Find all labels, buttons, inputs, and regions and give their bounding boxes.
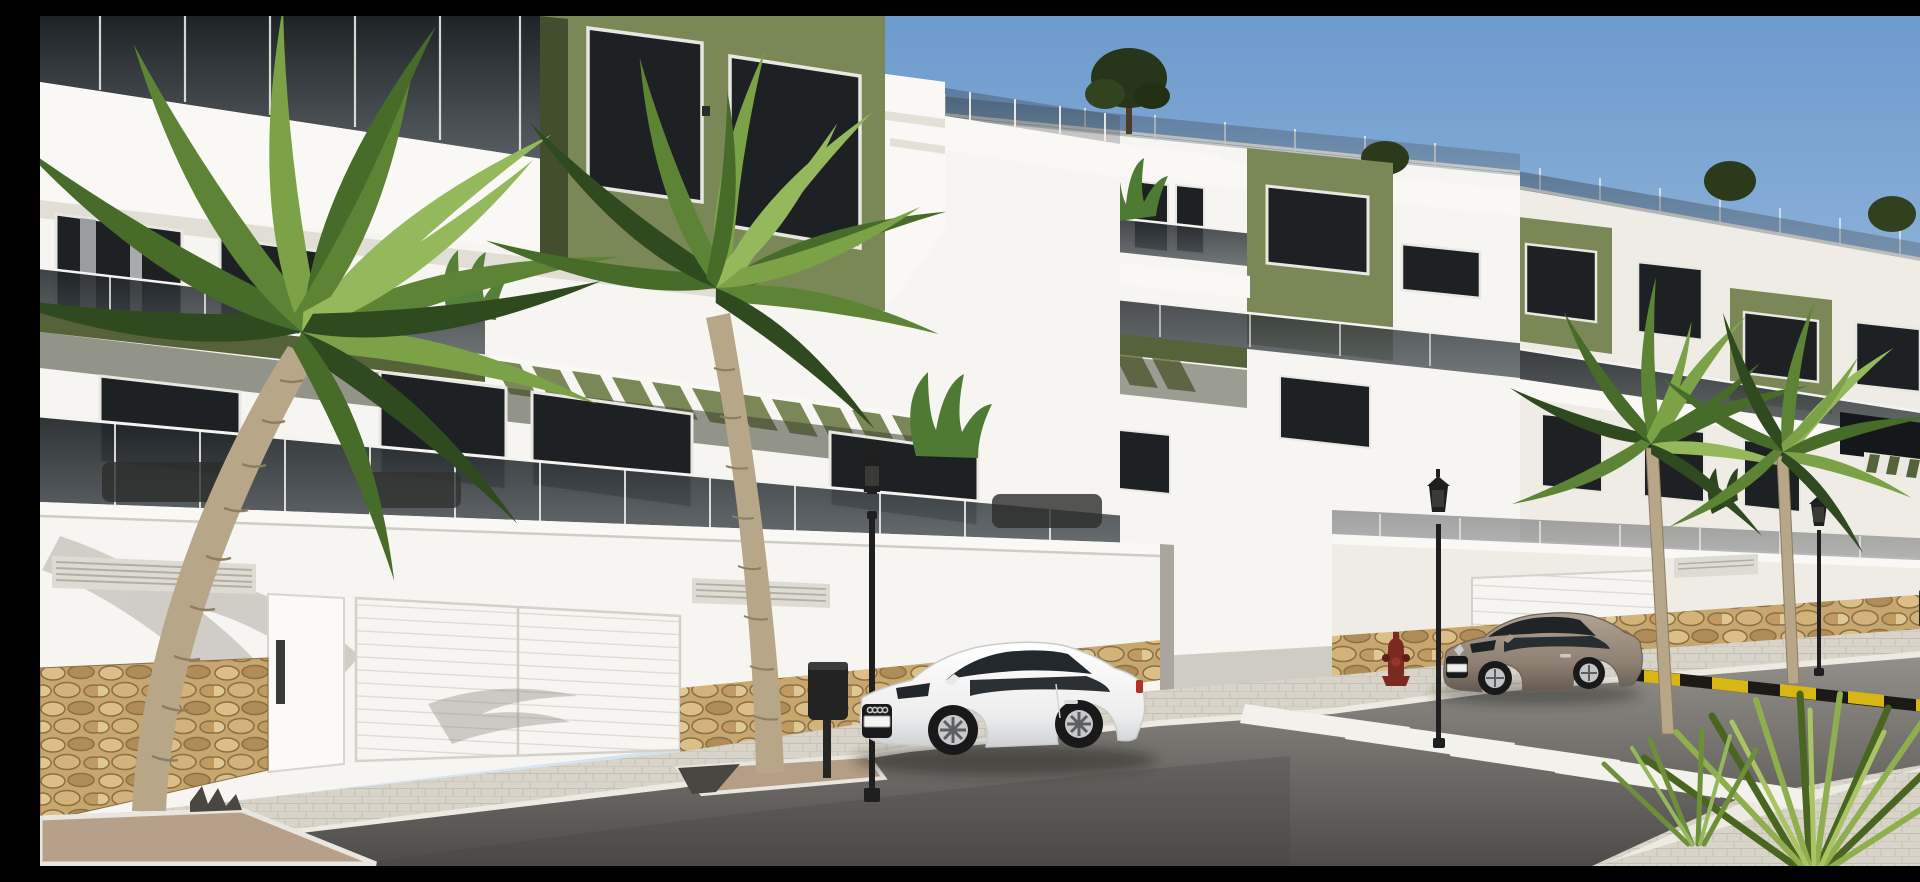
roof-shrub-c1 — [1704, 161, 1756, 201]
car-door-handle — [1560, 654, 1571, 658]
wall-vent-grille-3 — [1674, 554, 1758, 578]
roof-shrub-c2 — [1868, 196, 1916, 232]
pedestrian-door — [268, 594, 344, 772]
garage-door-left — [356, 598, 680, 761]
car-taillight — [1136, 680, 1143, 693]
terrace-furniture — [992, 494, 1102, 528]
scene-canvas — [40, 16, 1920, 866]
block-b-window-right — [1402, 244, 1480, 298]
license-plate — [1447, 664, 1467, 672]
terrace-furniture — [102, 462, 228, 502]
wall-lamp-icon — [702, 106, 710, 116]
street-scene-render: Daylight 3D render of a modern white apa… — [40, 16, 1920, 866]
block-b-green-box-window — [1267, 186, 1368, 274]
car-door-handle — [1064, 700, 1078, 704]
lamp-glass — [865, 466, 879, 486]
block-c-window-right — [1856, 322, 1920, 392]
car-shadow — [853, 745, 1157, 775]
block-b-f1-window — [1280, 376, 1370, 448]
building-block-a — [40, 16, 1120, 576]
door-handle — [276, 640, 285, 704]
license-plate — [864, 716, 890, 727]
